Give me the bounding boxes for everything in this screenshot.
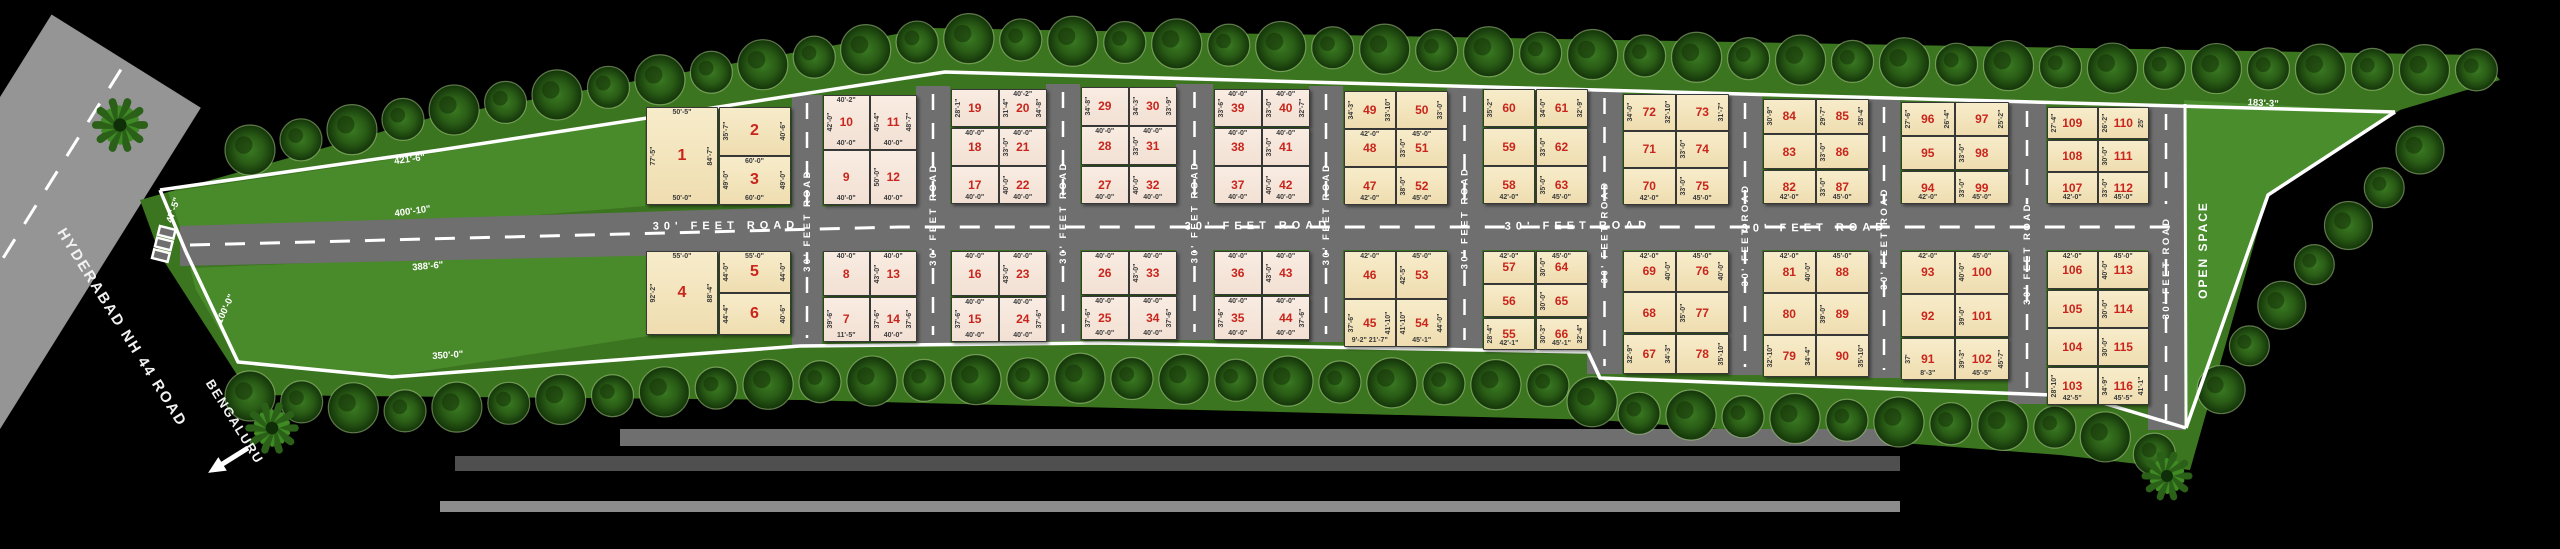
plot-98-dim-l: 33'-0": [1959, 144, 1967, 163]
plot-61[interactable]: 6134'-0"32'-9": [1536, 89, 1588, 127]
plot-40-dim-l: 33'-0": [1266, 99, 1274, 118]
plot-45-dim-l: 37'-6": [1348, 313, 1356, 332]
plot-107-dim-b: 42'-0": [2048, 194, 2097, 202]
plot-17[interactable]: 1740'-0": [951, 166, 999, 204]
plot-89-dim-l: 39'-0": [1820, 304, 1828, 323]
plot-115-dim-l: 30'-0": [2102, 338, 2110, 357]
plot-42-dim-b: 40'-0": [1263, 194, 1309, 202]
plot-76-dim-r: 40'-0": [1718, 262, 1726, 281]
plot-103[interactable]: 10342'-5"28'-10": [2047, 367, 2098, 405]
plot-62-dim-l: 33'-0": [1540, 137, 1548, 156]
plot-109-dim-l: 27'-4": [2051, 114, 2059, 133]
plot-92[interactable]: 92: [1901, 294, 1955, 337]
plot-21-dim-t: 40'-0": [1000, 130, 1046, 138]
plot-93[interactable]: 9342'-0": [1901, 251, 1955, 294]
plot-43-dim-l: 43'-0": [1266, 264, 1274, 283]
plot-number: 105: [2048, 291, 2097, 327]
plot-102-dim-r: 45'-7": [1998, 350, 2006, 369]
plot-9-dim-b: 40'-0": [824, 195, 869, 203]
plot-112[interactable]: 11245'-0"33'-0": [2098, 172, 2149, 204]
plot-28[interactable]: 2840'-0": [1081, 126, 1129, 165]
plot-13-dim-l: 43'-0": [874, 264, 882, 283]
plot-102-dim-l: 39'-3": [1959, 350, 1967, 369]
plot-63-dim-l: 35'-0": [1540, 176, 1548, 195]
plot-12[interactable]: 1240'-0"50'-0": [870, 150, 917, 205]
plot-44[interactable]: 4440'-0"40'-0"37'-6": [1262, 296, 1310, 340]
plot-1-dim-l: 77'-5": [650, 146, 658, 165]
plot-63-dim-b: 45'-0": [1537, 194, 1587, 202]
plot-110[interactable]: 11026'-2"25': [2098, 107, 2149, 139]
plot-16[interactable]: 1640'-0": [951, 251, 999, 296]
plot-6-dim-r: 40'-6": [780, 304, 788, 323]
plot-66-dim-r: 32'-4": [1577, 325, 1585, 344]
plot-57-dim-t: 42'-0": [1484, 253, 1534, 261]
plot-27-dim-b: 40'-0": [1082, 194, 1128, 202]
plot-77[interactable]: 7735'-0": [1676, 292, 1729, 333]
plot-39[interactable]: 3940'-0"33'-6": [1214, 89, 1262, 127]
plot-36[interactable]: 3640'-0": [1214, 251, 1262, 295]
plot-71[interactable]: 71: [1623, 131, 1676, 168]
plot-25[interactable]: 2540'-0"40'-0"37'-6": [1081, 296, 1129, 340]
plot-14-dim-l: 37'-6": [874, 310, 882, 329]
plot-15-dim-b: 40'-0": [952, 332, 998, 340]
plot-15-dim-l: 37'-6": [955, 310, 963, 329]
plot-107[interactable]: 10742'-0": [2047, 172, 2098, 204]
plot-3[interactable]: 360'-0"60'-0"49'-0"49'-0": [719, 156, 791, 205]
plot-19-dim-l: 28'-1": [955, 99, 963, 118]
plot-13-dim-t: 40'-0": [871, 253, 916, 261]
plot-79[interactable]: 7932'-10"34'-4": [1763, 335, 1816, 377]
plot-113-dim-l: 40'-0": [2102, 261, 2110, 280]
plot-5-dim-r: 44'-0": [780, 262, 788, 281]
plot-59[interactable]: 59: [1483, 128, 1535, 166]
plot-66[interactable]: 6645'-1"30'-3"32'-4": [1536, 318, 1588, 351]
plot-25-dim-l: 37'-6": [1085, 308, 1093, 327]
plot-1[interactable]: 150'-5"50'-0"77'-5"84'-7": [646, 107, 718, 205]
plot-116-dim-b: 45'-5": [2099, 395, 2148, 403]
plot-85-dim-l: 29'-7": [1820, 107, 1828, 126]
plot-10-dim-t: 40'-2": [824, 97, 869, 105]
plot-number: 95: [1902, 137, 1954, 169]
plot-67-dim-r: 34'-3": [1665, 345, 1673, 364]
plot-40[interactable]: 4040'-0"33'-0"32'-7": [1262, 89, 1310, 127]
plot-1-dim-r: 84'-7": [707, 146, 715, 165]
plot-48-dim-t: 42'-0": [1345, 131, 1395, 139]
plot-47-dim-b: 42'-0": [1345, 195, 1395, 203]
plot-65-dim-l: 30'-0": [1540, 291, 1548, 310]
plot-24-dim-b: 40'-0": [1000, 332, 1046, 340]
plot-78[interactable]: 7835'-10": [1676, 334, 1729, 375]
plot-62[interactable]: 6233'-0": [1536, 128, 1588, 166]
plot-11-dim-l: 45'-4": [874, 113, 882, 132]
plot-48[interactable]: 4842'-0": [1344, 129, 1396, 167]
plot-28-dim-t: 40'-0": [1082, 128, 1128, 136]
plot-37[interactable]: 3740'-0": [1214, 166, 1262, 204]
plot-30-dim-r: 33'-9": [1166, 97, 1174, 116]
plot-24[interactable]: 2440'-0"40'-0"37'-6": [999, 297, 1047, 342]
plot-number: 59: [1484, 129, 1534, 165]
plot-14-dim-r: 37'-6": [906, 310, 914, 329]
plot-30[interactable]: 3034'-3"33'-9": [1129, 87, 1177, 126]
plot-number: 80: [1764, 294, 1815, 334]
plot-17-dim-b: 40'-0": [952, 194, 998, 202]
plot-5-dim-l: 44'-0": [723, 262, 731, 281]
plot-34-dim-r: 37'-6": [1166, 308, 1174, 327]
plot-26[interactable]: 2640'-0": [1081, 251, 1129, 295]
plot-number: 68: [1624, 293, 1675, 332]
plot-82-dim-b: 42'-0": [1764, 194, 1815, 202]
plot-number: 108: [2048, 141, 2097, 171]
plot-38[interactable]: 3840'-0": [1214, 128, 1262, 166]
plot-75[interactable]: 7545'-0"33'-0": [1676, 168, 1729, 205]
plot-95[interactable]: 95: [1901, 136, 1955, 170]
plot-5-dim-t: 55'-0": [720, 253, 790, 261]
plot-2-dim-r: 40'-6": [780, 122, 788, 141]
plot-114[interactable]: 11430'-0": [2098, 290, 2149, 328]
plot-90[interactable]: 9035'-10": [1816, 335, 1869, 377]
plot-11-dim-b: 40'-0": [871, 140, 916, 148]
plot-63[interactable]: 6345'-0"35'-0": [1536, 166, 1588, 204]
plot-35[interactable]: 3540'-0"40'-0"37'-6": [1214, 296, 1262, 340]
plot-46[interactable]: 4642'-0": [1344, 251, 1396, 299]
plot-54-dim-r: 44'-0": [1437, 313, 1445, 332]
plot-23[interactable]: 2340'-0"43'-0": [999, 251, 1047, 296]
plot-69-dim-r: 40'-0": [1665, 262, 1673, 281]
plot-6[interactable]: 644'-4"40'-6": [719, 293, 791, 335]
plot-53[interactable]: 5345'-0"42'-5": [1396, 251, 1448, 299]
plot-18[interactable]: 1840'-0": [951, 128, 999, 166]
plot-52-dim-l: 38'-0": [1400, 176, 1408, 195]
plot-88-dim-t: 45'-0": [1817, 253, 1868, 261]
plot-1-dim-t: 50'-5": [647, 109, 717, 117]
plot-61-dim-r: 32'-9": [1577, 99, 1585, 118]
plot-85[interactable]: 8529'-7"28'-4": [1816, 99, 1869, 134]
plot-111[interactable]: 11130'-0": [2098, 140, 2149, 172]
plot-number: 56: [1484, 285, 1534, 316]
plot-18-dim-t: 40'-0": [952, 130, 998, 138]
plot-49[interactable]: 4934'-3"33'-10": [1344, 91, 1396, 129]
plot-44-dim-r: 37'-6": [1299, 308, 1307, 327]
plot-24-dim-r: 37'-6": [1036, 310, 1044, 329]
plot-53-dim-t: 45'-0": [1397, 253, 1447, 261]
plot-23-dim-t: 40'-0": [1000, 253, 1046, 261]
plot-47[interactable]: 4742'-0": [1344, 167, 1396, 205]
plot-35-dim-b: 40'-0": [1215, 330, 1261, 338]
plot-86[interactable]: 8633'-0": [1816, 134, 1869, 169]
plot-69[interactable]: 6942'-0"40'-0": [1623, 251, 1676, 292]
plots-layer: 150'-5"50'-0"77'-5"84'-7"235'-7"40'-6"36…: [0, 0, 2560, 549]
plot-12-dim-b: 40'-0": [871, 195, 916, 203]
plot-14[interactable]: 1440'-0"37'-6"37'-6": [870, 297, 917, 342]
plot-79-dim-r: 34'-4": [1805, 346, 1813, 365]
plot-79-dim-l: 32'-10": [1767, 344, 1775, 367]
plot-41[interactable]: 4140'-0"33'-0": [1262, 128, 1310, 166]
plot-70-dim-b: 42'-0": [1624, 195, 1675, 203]
plot-10-dim-l: 42'-0": [827, 113, 835, 132]
plot-105[interactable]: 105: [2047, 290, 2098, 328]
plot-70[interactable]: 7042'-0": [1623, 168, 1676, 205]
plot-75-dim-l: 33'-0": [1680, 177, 1688, 196]
plot-20[interactable]: 2040'-2"31'-4"34'-8": [999, 89, 1047, 127]
plot-number: 83: [1764, 135, 1815, 168]
plot-52-dim-b: 45'-0": [1397, 195, 1447, 203]
plot-14-dim-b: 40'-0": [871, 332, 916, 340]
plot-99[interactable]: 9945'-0"33'-0": [1955, 171, 2009, 205]
plot-51-dim-l: 33'-0": [1400, 138, 1408, 157]
plot-layout-plan: HYDERABAD NH 44 ROADBENGALURU30' FEET RO…: [0, 0, 2560, 549]
plot-100[interactable]: 10045'-0"40'-0": [1955, 251, 2009, 294]
plot-49-dim-r: 33'-10": [1385, 98, 1393, 121]
plot-104[interactable]: 104: [2047, 328, 2098, 366]
plot-69-dim-t: 42'-0": [1624, 253, 1675, 261]
plot-42[interactable]: 4240'-0"40'-0": [1262, 166, 1310, 204]
plot-73-dim-r: 31'-7": [1718, 103, 1726, 122]
plot-39-dim-l: 33'-6": [1218, 99, 1226, 118]
plot-102[interactable]: 10245'-5"39'-3"45'-7": [1955, 338, 2009, 381]
plot-32-dim-b: 40'-0": [1130, 194, 1176, 202]
plot-74[interactable]: 7433'-0": [1676, 131, 1729, 168]
plot-58-dim-b: 42'-0": [1484, 194, 1534, 202]
plot-72-dim-r: 32'-10": [1665, 101, 1673, 124]
plot-number: 92: [1902, 295, 1954, 336]
plot-16-dim-t: 40'-0": [952, 253, 998, 261]
plot-21[interactable]: 2140'-0"33'-0": [999, 128, 1047, 166]
plot-15-dim-t: 40'-0": [952, 299, 998, 307]
plot-81-dim-r: 40'-0": [1805, 262, 1813, 281]
plot-84-dim-l: 30'-9": [1767, 107, 1775, 126]
plot-7[interactable]: 711'-5"39'-6": [823, 297, 870, 342]
plot-46-dim-t: 42'-0": [1345, 253, 1395, 261]
plot-72[interactable]: 7234'-0"32'-10": [1623, 94, 1676, 131]
plot-67[interactable]: 6732'-9"34'-3": [1623, 334, 1676, 375]
plot-6-dim-l: 44'-4": [723, 304, 731, 323]
plot-87[interactable]: 8745'-0"33'-0": [1816, 170, 1869, 205]
plot-23-dim-l: 43'-0": [1003, 264, 1011, 283]
plot-19[interactable]: 1928'-1": [951, 89, 999, 127]
plot-51[interactable]: 5145'-0"33'-0": [1396, 129, 1448, 167]
plot-72-dim-l: 34'-0": [1627, 103, 1635, 122]
plot-29-dim-l: 34'-8": [1085, 97, 1093, 116]
plot-64-dim-l: 30'-0": [1540, 258, 1548, 277]
plot-61-dim-l: 34'-0": [1540, 99, 1548, 118]
plot-9[interactable]: 940'-0": [823, 150, 870, 205]
plot-110-dim-r: 25': [2138, 118, 2146, 127]
plot-50[interactable]: 5033'-0": [1396, 91, 1448, 129]
plot-20-dim-r: 34'-8": [1036, 99, 1044, 118]
plot-20-dim-l: 31'-4": [1003, 99, 1011, 118]
plot-50-dim-r: 33'-0": [1437, 100, 1445, 119]
plot-64[interactable]: 6445'-0"30'-0": [1536, 251, 1588, 284]
plot-52[interactable]: 5245'-0"38'-0": [1396, 167, 1448, 205]
plot-10[interactable]: 1040'-2"40'-0"42'-0": [823, 95, 870, 150]
plot-45-dim-r: 41'-10": [1385, 311, 1393, 334]
plot-74-dim-l: 33'-0": [1680, 140, 1688, 159]
plot-13[interactable]: 1340'-0"43'-0": [870, 251, 917, 296]
plot-22-dim-b: 40'-0": [1000, 194, 1046, 202]
plot-35-dim-l: 37'-6": [1218, 308, 1226, 327]
plot-54-dim-b: 45'-1": [1397, 337, 1447, 345]
plot-66-dim-l: 30'-3": [1540, 325, 1548, 344]
plot-76[interactable]: 7645'-0"40'-0": [1676, 251, 1729, 292]
plot-22-dim-l: 40'-0": [1003, 176, 1011, 195]
plot-86-dim-l: 33'-0": [1820, 142, 1828, 161]
plot-number: 71: [1624, 132, 1675, 167]
plot-108[interactable]: 108: [2047, 140, 2098, 172]
plot-81[interactable]: 8142'-0"40'-0": [1763, 251, 1816, 293]
plot-60[interactable]: 6035'-2": [1483, 89, 1535, 127]
plot-87-dim-l: 33'-0": [1820, 178, 1828, 197]
plot-44-dim-t: 40'-0": [1263, 298, 1309, 306]
plot-34-dim-b: 40'-0": [1130, 330, 1176, 338]
plot-11-dim-r: 48'-7": [906, 113, 914, 132]
plot-36-dim-t: 40'-0": [1215, 253, 1261, 261]
plot-38-dim-t: 40'-0": [1215, 130, 1261, 138]
plot-91[interactable]: 918'-3"37': [1901, 338, 1955, 381]
plot-116-dim-r: 41'-1": [2138, 376, 2146, 395]
plot-number: 104: [2048, 329, 2097, 365]
plot-60-dim-l: 35'-2": [1487, 99, 1495, 118]
plot-45[interactable]: 459'-2" 21'-7"37'-6"41'-10": [1344, 299, 1396, 347]
plot-75-dim-b: 45'-0": [1677, 195, 1728, 203]
plot-106-dim-t: 42'-0": [2048, 253, 2097, 261]
plot-34-dim-t: 40'-0": [1130, 298, 1176, 306]
plot-73[interactable]: 7331'-7": [1676, 94, 1729, 131]
plot-68[interactable]: 68: [1623, 292, 1676, 333]
plot-106[interactable]: 10642'-0": [2047, 251, 2098, 289]
plot-53-dim-l: 42'-5": [1400, 265, 1408, 284]
plot-57[interactable]: 5742'-0": [1483, 251, 1535, 284]
plot-58[interactable]: 5842'-0": [1483, 166, 1535, 204]
plot-42-dim-l: 40'-0": [1266, 176, 1274, 195]
plot-115[interactable]: 11530'-0": [2098, 328, 2149, 366]
plot-21-dim-l: 33'-0": [1003, 137, 1011, 156]
plot-114-dim-l: 30'-0": [2102, 299, 2110, 318]
plot-4-dim-l: 92'-2": [650, 283, 658, 302]
plot-7-dim-l: 39'-6": [827, 310, 835, 329]
plot-82[interactable]: 8242'-0": [1763, 170, 1816, 205]
plot-93-dim-t: 42'-0": [1902, 253, 1954, 261]
plot-96-dim-l: 27'-6": [1905, 109, 1913, 128]
plot-65[interactable]: 6530'-0": [1536, 284, 1588, 317]
plot-102-dim-b: 45'-5": [1956, 370, 2008, 378]
plot-110-dim-l: 26'-2": [2102, 114, 2110, 133]
plot-33-dim-t: 40'-0": [1130, 253, 1176, 261]
plot-85-dim-r: 28'-4": [1858, 107, 1866, 126]
plot-32[interactable]: 3240'-0"40'-0": [1129, 166, 1177, 205]
plot-43[interactable]: 4340'-0"43'-0": [1262, 251, 1310, 295]
plot-11[interactable]: 1140'-0"45'-4"48'-7": [870, 95, 917, 150]
plot-3-dim-r: 49'-0": [780, 171, 788, 190]
plot-96-dim-r: 26'-4": [1944, 109, 1952, 128]
plot-81-dim-t: 42'-0": [1764, 253, 1815, 261]
plot-27[interactable]: 2740'-0": [1081, 166, 1129, 205]
plot-97-dim-r: 25'-2": [1998, 109, 2006, 128]
plot-31-dim-l: 33'-0": [1133, 136, 1141, 155]
plot-116[interactable]: 11645'-5"34'-9"41'-1": [2098, 367, 2149, 405]
plot-77-dim-l: 35'-0": [1680, 303, 1688, 322]
plot-94-dim-b: 42'-0": [1902, 194, 1954, 202]
plot-2[interactable]: 235'-7"40'-6": [719, 107, 791, 156]
plot-98[interactable]: 9833'-0": [1955, 136, 2009, 170]
plot-76-dim-t: 45'-0": [1677, 253, 1728, 261]
plot-88[interactable]: 8845'-0": [1816, 251, 1869, 293]
plot-54-dim-l: 41'-10": [1400, 311, 1408, 334]
plot-4[interactable]: 455'-0"92'-2"88'-4": [646, 251, 718, 335]
plot-25-dim-b: 40'-0": [1082, 330, 1128, 338]
plot-5[interactable]: 555'-0"44'-0"44'-0": [719, 251, 791, 293]
plot-15[interactable]: 1540'-0"40'-0"37'-6": [951, 297, 999, 342]
plot-94[interactable]: 9442'-0": [1901, 171, 1955, 205]
plot-109[interactable]: 10927'-4": [2047, 107, 2098, 139]
plot-116-dim-l: 34'-9": [2102, 376, 2110, 395]
plot-78-dim-r: 35'-10": [1718, 343, 1726, 366]
plot-41-dim-l: 33'-0": [1266, 137, 1274, 156]
plot-101[interactable]: 10139'-0": [1955, 294, 2009, 337]
plot-25-dim-t: 40'-0": [1082, 298, 1128, 306]
plot-113[interactable]: 11345'-0"40'-0": [2098, 251, 2149, 289]
plot-99-dim-l: 33'-0": [1959, 178, 1967, 197]
plot-31[interactable]: 3140'-0"33'-0": [1129, 126, 1177, 165]
plot-3-dim-l: 49'-0": [723, 171, 731, 190]
plot-55-dim-l: 28'-4": [1487, 325, 1495, 344]
plot-49-dim-l: 34'-3": [1348, 100, 1356, 119]
plot-40-dim-r: 32'-7": [1299, 99, 1307, 118]
plot-1-dim-b: 50'-0": [647, 195, 717, 203]
plot-55[interactable]: 5542'-1"28'-4": [1483, 318, 1535, 351]
plot-22[interactable]: 2240'-0"40'-0": [999, 166, 1047, 204]
plot-97[interactable]: 9725'-2": [1955, 102, 2009, 136]
plot-100-dim-l: 40'-0": [1959, 263, 1967, 282]
plot-34[interactable]: 3440'-0"40'-0"37'-6": [1129, 296, 1177, 340]
plot-80[interactable]: 80: [1763, 293, 1816, 335]
plot-4-dim-r: 88'-4": [707, 283, 715, 302]
plot-89[interactable]: 8939'-0": [1816, 293, 1869, 335]
plot-84[interactable]: 8430'-9": [1763, 99, 1816, 134]
plot-44-dim-b: 40'-0": [1263, 330, 1309, 338]
plot-8[interactable]: 840'-0": [823, 251, 870, 296]
plot-91-dim-l: 37': [1905, 354, 1913, 363]
plot-3-dim-b: 60'-0": [720, 195, 790, 203]
plot-103-dim-l: 28'-10": [2051, 374, 2059, 397]
plot-43-dim-t: 40'-0": [1263, 253, 1309, 261]
plot-33[interactable]: 3340'-0"43'-0": [1129, 251, 1177, 295]
plot-24-dim-t: 40'-0": [1000, 299, 1046, 307]
plot-100-dim-t: 45'-0": [1956, 253, 2008, 261]
plot-2-dim-l: 35'-7": [723, 122, 731, 141]
plot-8-dim-t: 40'-0": [824, 253, 869, 261]
plot-4-dim-t: 55'-0": [647, 253, 717, 261]
plot-54[interactable]: 5445'-1"41'-10"44'-0": [1396, 299, 1448, 347]
plot-91-dim-b: 8'-3": [1902, 370, 1954, 378]
plot-41-dim-t: 40'-0": [1263, 130, 1309, 138]
plot-96[interactable]: 9627'-6"26'-4": [1901, 102, 1955, 136]
plot-37-dim-b: 40'-0": [1215, 194, 1261, 202]
plot-12-dim-l: 50'-0": [874, 168, 882, 187]
plot-111-dim-l: 30'-0": [2102, 146, 2110, 165]
plot-7-dim-b: 11'-5": [824, 332, 869, 340]
plot-56[interactable]: 56: [1483, 284, 1535, 317]
plot-33-dim-l: 43'-0": [1133, 264, 1141, 283]
plot-35-dim-t: 40'-0": [1215, 298, 1261, 306]
plot-32-dim-l: 40'-0": [1133, 176, 1141, 195]
plot-83[interactable]: 83: [1763, 134, 1816, 169]
plot-45-dim-b: 9'-2" 21'-7": [1345, 337, 1395, 345]
plot-30-dim-l: 34'-3": [1133, 97, 1141, 116]
plot-31-dim-t: 40'-0": [1130, 128, 1176, 136]
plot-67-dim-l: 32'-9": [1627, 345, 1635, 364]
plot-10-dim-b: 40'-0": [824, 140, 869, 148]
plot-29[interactable]: 2934'-8": [1081, 87, 1129, 126]
